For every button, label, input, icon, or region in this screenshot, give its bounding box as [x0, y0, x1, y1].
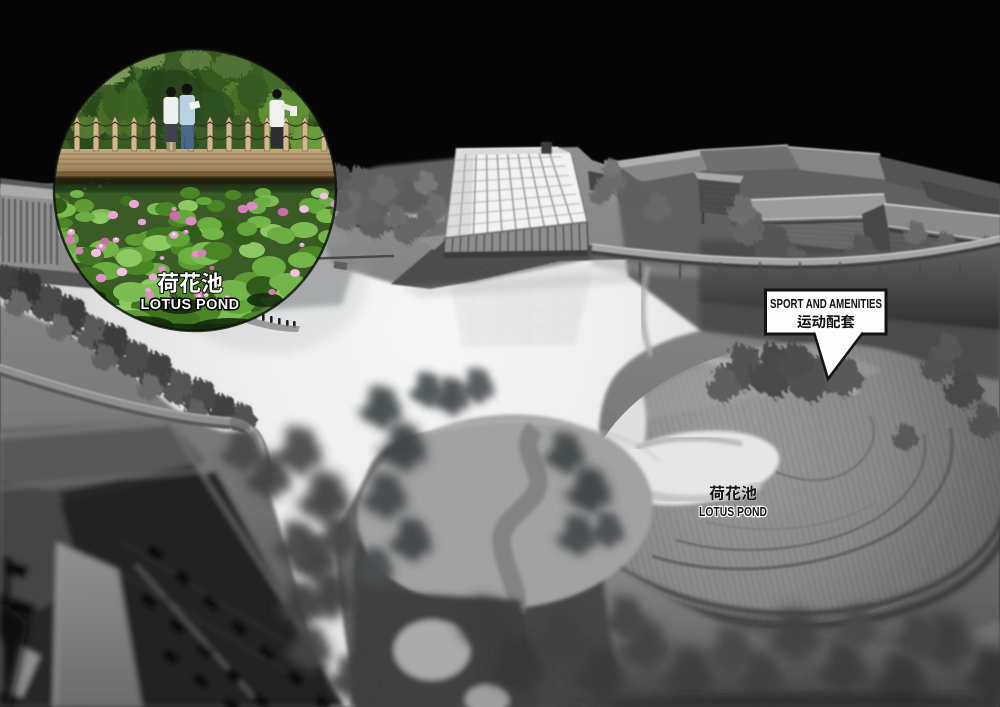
- svg-text:SPORT AND AMENITIES: SPORT AND AMENITIES: [770, 296, 882, 311]
- svg-text:LOTUS POND: LOTUS POND: [699, 504, 767, 519]
- svg-text:LOTUS POND: LOTUS POND: [140, 297, 239, 313]
